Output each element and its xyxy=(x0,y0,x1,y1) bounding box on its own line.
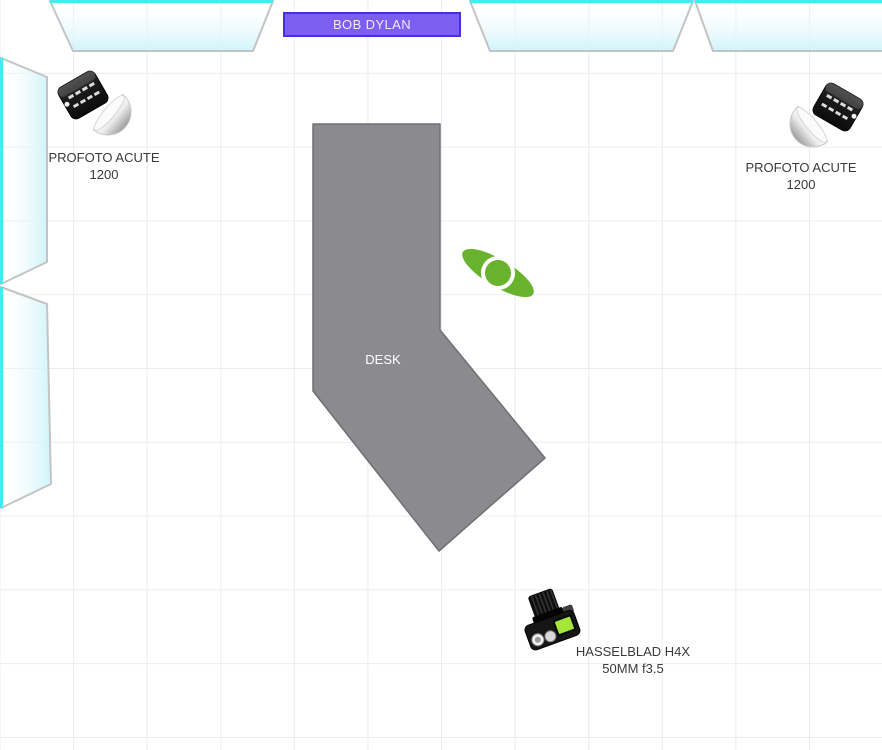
subject-name-text: BOB DYLAN xyxy=(333,17,411,32)
studio-scene xyxy=(0,0,882,750)
strobe-light-left-icon[interactable] xyxy=(56,69,141,144)
light-right-label: PROFOTO ACUTE 1200 xyxy=(711,159,882,193)
light-right-detail: 1200 xyxy=(711,176,882,193)
light-right-name: PROFOTO ACUTE xyxy=(711,159,882,176)
desk-shape[interactable] xyxy=(313,124,545,551)
light-left-label: PROFOTO ACUTE 1200 xyxy=(14,149,194,183)
subject-name-tag[interactable]: BOB DYLAN xyxy=(283,12,461,37)
person-top-view-icon[interactable] xyxy=(455,239,541,307)
window-top-right[interactable] xyxy=(695,1,882,51)
light-left-name: PROFOTO ACUTE xyxy=(14,149,194,166)
camera-label: HASSELBLAD H4X 50MM f3.5 xyxy=(543,643,723,677)
desk-label: DESK xyxy=(333,352,433,368)
camera-top-view-icon[interactable] xyxy=(514,583,582,651)
strobe-light-right-icon[interactable] xyxy=(781,81,866,156)
camera-detail: 50MM f3.5 xyxy=(543,660,723,677)
window-left-lower[interactable] xyxy=(1,287,51,508)
light-left-detail: 1200 xyxy=(14,166,194,183)
studio-floorplan-canvas: BOB DYLAN DESK PROFOTO ACUTE 1200 PROFOT… xyxy=(0,0,882,750)
window-top-left[interactable] xyxy=(50,1,273,51)
camera-name: HASSELBLAD H4X xyxy=(543,643,723,660)
window-top-middle[interactable] xyxy=(470,1,693,51)
